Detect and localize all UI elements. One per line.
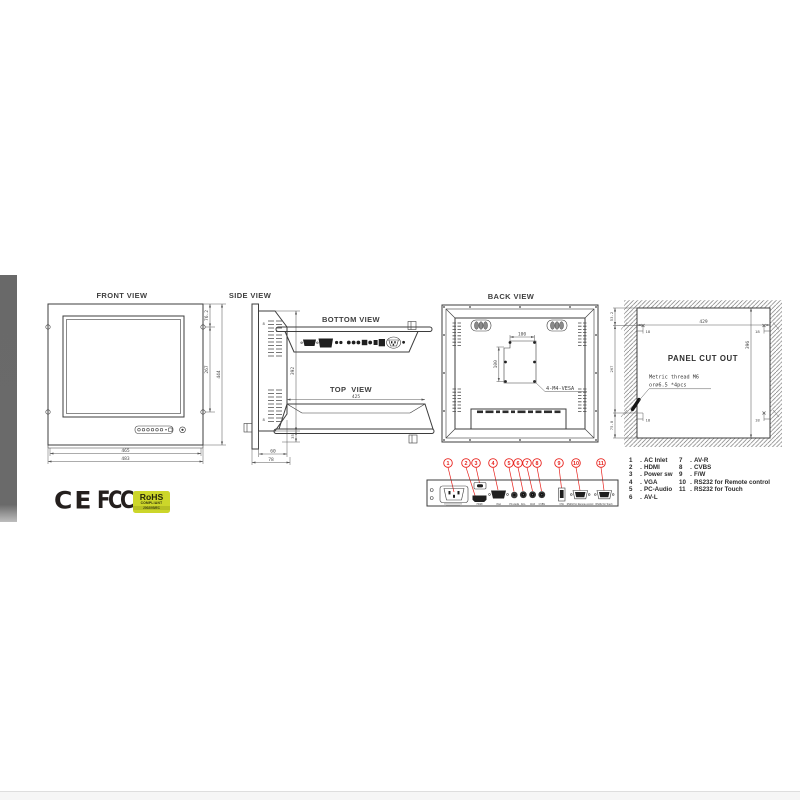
dimension-label: 100 xyxy=(493,360,499,369)
ac-inlet-bottom xyxy=(387,337,401,348)
port-label: RS232 for Touch xyxy=(595,503,613,506)
ac-inlet xyxy=(440,486,468,506)
legend-num: 4 xyxy=(629,479,638,486)
top-bezel-bar xyxy=(274,429,434,434)
back-connector-panel xyxy=(471,409,566,429)
legend-num: 2 xyxy=(629,464,638,471)
dimension-label: 60 xyxy=(270,448,276,454)
dimension-label: 78 xyxy=(268,457,274,463)
legend-item: 3.Power sw xyxy=(629,471,673,478)
dimension-label: 75.8 xyxy=(609,420,614,430)
legend-num: 6 xyxy=(629,494,638,501)
top-view-title: TOP VIEW xyxy=(330,385,373,394)
front-dimensions: 76.2 267 444 465 483 xyxy=(48,304,226,464)
legend-label: HDMI xyxy=(644,464,660,471)
thread-note-line1: Metric thread M6 xyxy=(649,375,699,381)
usb-fw-port: F/W xyxy=(559,488,566,506)
legend-num: 8 xyxy=(679,464,688,471)
vesa-mount-pattern: 100 100 4-M4-VESA xyxy=(493,332,587,392)
hdmi-port: HDMI xyxy=(473,496,487,507)
thread-note: Metric thread M6 or∅6.5 *4pcs xyxy=(639,375,711,401)
legend-item: 8.CVBS xyxy=(679,464,770,471)
top-clip xyxy=(409,435,417,443)
rs232-touch-port: RS232 for Touch xyxy=(594,491,614,507)
connector-strip-drawing: 1 2 3 4 5 6 7 8 9 10 11 xyxy=(420,450,625,512)
left-accent-bar xyxy=(0,275,17,522)
dimension-label: 76.2 xyxy=(204,310,210,321)
osd-button-strip xyxy=(135,426,185,434)
legend-item: 9.F/W xyxy=(679,471,770,478)
bottom-view-drawing: BOTTOM VIEW xyxy=(270,300,440,362)
back-frame-screws xyxy=(443,306,597,441)
fcc-mark: FCC xyxy=(97,486,132,514)
vent-mark: 8 xyxy=(263,417,266,422)
back-view-drawing: BACK VIEW xyxy=(435,285,613,450)
callout-number: 6 xyxy=(517,461,520,467)
legend-item: 1.AC Inlet xyxy=(629,457,673,464)
side-mount-clip xyxy=(244,424,252,433)
page-bottom-band xyxy=(0,791,800,800)
callout-number: 3 xyxy=(475,461,478,467)
callout-number: 11 xyxy=(598,461,604,467)
legend-label: AC Inlet xyxy=(644,457,667,464)
spec-sheet-page: FRONT VIEW xyxy=(0,0,800,800)
legend-item: 2.HDMI xyxy=(629,464,673,471)
front-bezel-outline xyxy=(48,304,203,445)
cvbs-jack: CVBS xyxy=(538,491,545,506)
legend-label: Power sw xyxy=(644,471,673,478)
port-label: HDMI xyxy=(477,504,483,506)
av-r-jack: AV-R xyxy=(529,491,536,506)
vent-mark: 8 xyxy=(263,321,266,326)
dimension-label: 18 xyxy=(755,418,760,423)
callout-number: 5 xyxy=(508,461,511,467)
legend-item: 7.AV-R xyxy=(679,457,770,464)
thread-note-line2: or∅6.5 *4pcs xyxy=(649,383,686,389)
legend-label: RS232 for Remote control xyxy=(694,479,770,486)
callout-numbers: 1 2 3 4 5 6 7 8 9 10 11 xyxy=(444,459,606,468)
dimension-label: 100 xyxy=(518,332,527,338)
legend-label: VGA xyxy=(644,479,657,486)
dimension-label: 465 xyxy=(121,448,130,454)
dimension-label: 18 xyxy=(755,329,760,334)
callout-number: 9 xyxy=(558,461,561,467)
back-corner-bevels xyxy=(446,309,594,438)
dimension-label: 425 xyxy=(352,394,361,400)
rs232-remote-port: RS232 for Remote control xyxy=(567,491,594,507)
legend-item: 4.VGA xyxy=(629,479,673,486)
callout-number: 1 xyxy=(447,461,450,467)
dimension-label: 392 xyxy=(290,367,296,376)
cutout-hole-marks xyxy=(642,324,766,415)
panel-cutout-title: PANEL CUT OUT xyxy=(668,354,738,363)
legend-label: CVBS xyxy=(694,464,711,471)
side-view-title: SIDE VIEW xyxy=(229,291,272,300)
legend-item: 10.RS232 for Remote control xyxy=(679,479,770,486)
pc-audio-jack: PC-Audio xyxy=(509,492,520,507)
top-view-drawing: TOP VIEW 425 xyxy=(270,380,440,445)
back-view-title: BACK VIEW xyxy=(488,292,535,301)
bottom-view-title: BOTTOM VIEW xyxy=(322,315,381,324)
front-view-drawing: FRONT VIEW xyxy=(30,285,235,481)
callout-number: 10 xyxy=(573,461,579,467)
legend-num: 11 xyxy=(679,486,688,493)
side-bezel-plate xyxy=(252,304,259,449)
legend-column-1: 1.AC Inlet 2.HDMI 3.Power sw 4.VGA 5.PC-… xyxy=(629,457,673,502)
rohs-directive: 2002/95/EC xyxy=(133,506,170,511)
dimension-label: 267 xyxy=(204,365,210,374)
legend-label: AV-L xyxy=(644,494,658,501)
port-label: PC-Audio xyxy=(509,503,520,506)
bottom-connector-row xyxy=(301,337,405,348)
dimension-label: 18 xyxy=(646,329,651,334)
panel-cutout-drawing: PANEL CUT OUT 429 396 53.2 267 75.8 18 1… xyxy=(608,288,798,460)
legend-num: 1 xyxy=(629,457,638,464)
dimension-label: 396 xyxy=(745,341,751,350)
callout-number: 4 xyxy=(492,461,495,467)
legend-num: 10 xyxy=(679,479,688,486)
legend-num: 7 xyxy=(679,457,688,464)
back-outer-frame xyxy=(442,305,598,442)
callout-number: 7 xyxy=(526,461,529,467)
legend-column-2: 7.AV-R 8.CVBS 9.F/W 10.RS232 for Remote … xyxy=(679,457,770,494)
legend-num: 5 xyxy=(629,486,638,493)
legend-item: 6.AV-L xyxy=(629,494,673,501)
vesa-label: 4-M4-VESA xyxy=(546,386,575,392)
legend-label: AV-R xyxy=(694,457,708,464)
cutout-rect xyxy=(637,308,770,438)
speaker-grille-left xyxy=(471,320,491,331)
front-mount-holes xyxy=(46,325,205,414)
power-switch xyxy=(474,483,486,490)
av-l-jack: AV-L xyxy=(520,491,527,506)
port-label: RS232 for Remote control xyxy=(567,503,594,506)
ce-mark: CE xyxy=(54,487,93,515)
bottom-clip xyxy=(408,322,416,330)
dimension-label: 444 xyxy=(216,370,222,379)
rohs-badge: RoHS COMPLIANT 2002/95/EC xyxy=(133,491,170,513)
legend-item: 11.RS232 for Touch xyxy=(679,486,770,493)
legend-num: 9 xyxy=(679,471,688,478)
port-label: VGA xyxy=(496,503,501,506)
dimension-label: 429 xyxy=(699,319,708,325)
callout-number: 2 xyxy=(465,461,468,467)
front-view-title: FRONT VIEW xyxy=(96,291,148,300)
dimension-label: 483 xyxy=(121,456,130,462)
legend-label: PC-Audio xyxy=(644,486,672,493)
speaker-grille-right xyxy=(547,320,567,331)
port-label: AV-L xyxy=(521,503,527,506)
legend-num: 3 xyxy=(629,471,638,478)
front-screen-outline xyxy=(63,316,184,417)
dimension-label: 18 xyxy=(646,418,651,423)
legend-label: RS232 for Touch xyxy=(694,486,743,493)
top-body-outline xyxy=(279,404,433,429)
port-label: AV-R xyxy=(530,503,536,506)
dimension-label: 53.2 xyxy=(609,311,614,321)
callout-leaders xyxy=(448,467,604,495)
vga-port: VGA xyxy=(489,491,509,507)
legend-item: 5.PC-Audio xyxy=(629,486,673,493)
legend-label: F/W xyxy=(694,471,705,478)
callout-number: 8 xyxy=(536,461,539,467)
port-label: CVBS xyxy=(539,504,546,506)
dimension-label: 267 xyxy=(609,365,614,373)
